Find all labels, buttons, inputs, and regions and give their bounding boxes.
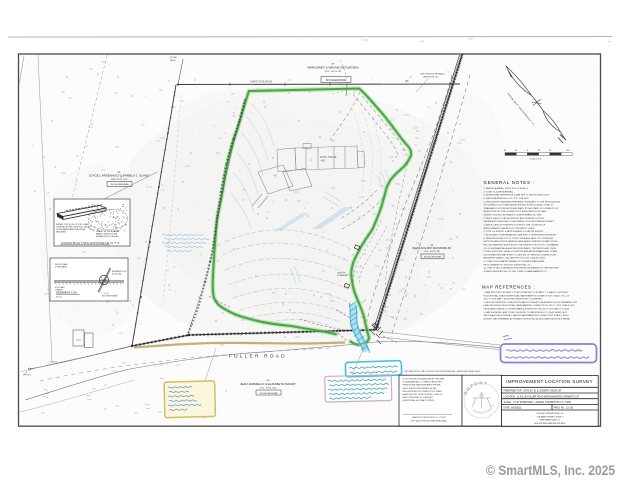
svg-text:SCALE : 1″=40′ APPROVED: SCALE : 1″=40′ APPROVED : LANDON J PETRO… [504,401,573,404]
svg-text:3. MAP SHOWING LAND TO BE CON: 3. MAP SHOWING LAND TO BE CONVEYED TO RA… [484,311,568,314]
svg-text:DATE : 8/18/2021: DATE : 8/18/2021 [504,407,523,410]
svg-text:2. RECORD RESURVEY SUBDIVISIO: 2. RECORD RESURVEY SUBDIVISION MAP FOR H… [484,301,578,304]
svg-text:178 MAIN STREET, SUITE 2: 178 MAIN STREET, SUITE 2 [537,415,565,418]
svg-text:Scale in feet: Scale in feet [530,158,541,161]
svg-text:(VOL. 142 PG. 88): (VOL. 142 PG. 88) [325,71,342,73]
svg-text:AND CONFORMS TO CLASS A-2: AND CONFORMS TO CLASS A-2 [403,396,434,399]
svg-text:IS SUBSTANTIALLY CORRECT AS NO: IS SUBSTANTIALLY CORRECT AS NOTED [403,381,443,384]
svg-text:LAND RECORDS FULLER ROAD, BARK: LAND RECORDS FULLER ROAD, BARKHAMSTED CO… [484,304,576,307]
svg-text:1. MAP ENTITLED PROPERTY TO B: 1. MAP ENTITLED PROPERTY TO BE CONVEYED … [484,291,570,294]
svg-text:REQUIRED: REQUIRED [56,232,67,234]
svg-text:9. TOTAL TOPOGRAPHIC AREAS OF: 9. TOTAL TOPOGRAPHIC AREAS OF COVERED WA… [484,260,545,263]
svg-text:(MIRAFI 600X OR EQUAL): (MIRAFI 600X OR EQUAL) [96,235,119,238]
svg-text:32 FULLER ROAD: 32 FULLER ROAD [424,256,442,259]
svg-text:MAP REFERENCES :: MAP REFERENCES : [482,285,535,290]
svg-text:29 FULLER ROAD: 29 FULLER ROAD [259,392,278,395]
svg-text:(VOL. 76 PG. 310): (VOL. 76 PG. 310) [260,388,277,390]
svg-text:RECORD MAPPING SUPPLIED BY THE: RECORD MAPPING SUPPLIED BY THE RESPECTIV… [484,243,560,246]
svg-text:LOCATION : 31 E/L 30 FULLER: LOCATION : 31 E/L 30 FULLER ROAD BARKHAM… [504,395,580,398]
svg-text:THIS MAP IS NOT VALID WITHOUT: THIS MAP IS NOT VALID WITHOUT A LIVE SIG… [404,370,481,373]
svg-text:DEPENDENT RESURVEY CONFORMING: DEPENDENT RESURVEY CONFORMING TO HORIZON… [484,220,556,223]
svg-text:AS ADOPTED BY THE CONNECTICUT: AS ADOPTED BY THE CONNECTICUT ASSOCIATIO… [484,210,547,213]
svg-text:3. HORIZONTAL REFERENCE = MAP: 3. HORIZONTAL REFERENCE = MAP REF. #1 BE… [484,194,549,197]
svg-text:DUPONT SURVEYING LLC: DUPONT SURVEYING LLC [536,413,564,415]
svg-text:30 FULLER ROAD: 30 FULLER ROAD [326,79,346,82]
svg-text:CLASS A-2 AND IS INTENDED TO D: CLASS A-2 AND IS INTENDED TO DEPICT THE … [484,224,546,227]
svg-text:JULY 8, 1964. MAP # 64-119 WES: JULY 8, 1964. MAP # 64-119 WESTINGHOUSE … [484,298,544,301]
svg-text:PREPARED FOR : STACEY B. & JO: PREPARED FOR : STACEY B. & JOSEPH ONON J… [504,390,563,393]
svg-text:GENERAL NOTES :: GENERAL NOTES : [484,180,535,185]
svg-text:JEAN JARMELLO & ELIZABETH MAND: JEAN JARMELLO & ELIZABETH MANDY [240,382,296,386]
svg-text:NOT VALID WITHOUT EMBOSSED SEA: NOT VALID WITHOUT EMBOSSED SEAL [411,419,447,422]
svg-text:IMPROVEMENT LOCATION SURVEY: IMPROVEMENT LOCATION SURVEY [506,379,593,384]
svg-text:P#1714: P#1714 [23,375,31,377]
svg-text:LINE OF BLDG SETBACK: LINE OF BLDG SETBACK [420,73,445,76]
svg-text:DEPICTED AND NOTED HEREON HAVE: DEPICTED AND NOTED HEREON HAVE BEEN COMP… [484,240,558,243]
svg-text:TO MY KNOWLEDGE AND BELIEF THI: TO MY KNOWLEDGE AND BELIEF THIS MAP [403,378,446,381]
svg-text:40: 40 [538,150,540,152]
svg-text:4. FIELD REFERENCE = LOC. CTL: 4. FIELD REFERENCE = LOC. CTL. STA. MLS [484,197,530,200]
svg-text:80: 80 [549,150,551,152]
svg-text:REGULATIONS OF CONNECTICUT STA: REGULATIONS OF CONNECTICUT STATE [403,390,443,393]
svg-text:SEDIMENT LOG: SEDIMENT LOG [56,291,77,295]
svg-text:N/F: N/F [405,81,409,83]
svg-text:5. THIS SURVEY HAS BEEN PREPA: 5. THIS SURVEY HAS BEEN PREPARED PURSUAN… [484,200,561,203]
svg-text:PECKS ASSOCIATES LLC (FORESMAN: PECKS ASSOCIATES LLC (FORESMAN) & SURVEY… [484,308,570,311]
svg-text:1. PARCEL A AREA = 78,675 S.F: 1. PARCEL A AREA = 78,675 S.F.± (1.81 AC… [484,187,529,190]
svg-text:OTHER SOURCES. THESE LOCATIONS: OTHER SOURCES. THESE LOCATIONS ARE APPRO… [484,250,558,253]
svg-text:10. LINE OF BLDG SETBACKS SHOW: 10. LINE OF BLDG SETBACKS SHOWN AS DELIN… [484,267,560,270]
svg-text:LANDON J PETROVITS L.S. # 70: LANDON J PETROVITS L.S. # 70297 [412,416,447,419]
svg-text:860-352-8960 FAX 860-352-89: 860-352-8960 FAX 860-352-8961 [535,422,567,425]
svg-text:MARGARET & WAYNE DETLEFSEN: MARGARET & WAYNE DETLEFSEN [307,66,358,70]
svg-text:SUCH FEATURES MAY EXIST. LOCAT: SUCH FEATURES MAY EXIST. LOCATIONS OF SE… [484,253,557,256]
svg-text:AGENCIES SECTIONS 20-300B-1 TH: AGENCIES SECTIONS 20-300B-1 THRU 20 [403,393,444,396]
svg-text:12 IN. DIA.: 12 IN. DIA. [112,272,122,275]
svg-text:SKETCHABLY AS FOUND ALL PARCEL: SKETCHABLY AS FOUND ALL PARCEL BARKHAMST… [484,314,570,317]
svg-text:HORIZONTAL ACCURACY SPECS.: HORIZONTAL ACCURACY SPECS. [403,399,436,402]
svg-text:(VOL. 101 PG. 17): (VOL. 101 PG. 17) [424,251,440,253]
svg-text:STANDARDS FOR SURVEYS AND MAPS: STANDARDS FOR SURVEYS AND MAPS IN THE ST… [484,207,560,210]
svg-text:40: 40 [504,150,506,152]
svg-text:JOYCE L ARSENAULT & PAMELA J.: JOYCE L ARSENAULT & PAMELA J. OLANO [89,174,150,178]
svg-text:CLEARING: CLEARING [337,274,348,277]
svg-text:FULLER ROAD & EAST RIVER ROAD,: FULLER ROAD & EAST RIVER ROAD, BARKHAMST… [484,294,570,297]
svg-text:OF CONNECTICUT STATE AGENCIES: OF CONNECTICUT STATE AGENCIES SECTIONS 2… [484,204,554,207]
svg-text:(SEE NOTE #2): (SEE NOTE #2) [423,77,438,79]
svg-text:OR GOVERNMENTAL AGENCIES FROM: OR GOVERNMENTAL AGENCIES FROM PAROL TEST… [484,247,557,250]
svg-text:NEW HARTFORD, CT: NEW HARTFORD, CT [540,419,562,422]
svg-text:AUGUST 1985 PREPARED BY HOWARD: AUGUST 1985 PREPARED BY HOWARD SURVEYING… [484,317,571,320]
svg-text:HELD: HELD [170,60,176,62]
svg-text:ZONING REGULATIONS OF THE TOWN: ZONING REGULATIONS OF THE TOWN OF BARKHA… [484,270,548,273]
svg-text:PROJ NO : 21-151: PROJ NO : 21-151 [554,408,574,410]
svg-text:N.T.S.: N.T.S. [56,296,62,298]
svg-text:7. BOUNDARY DETERMINATION CAT: 7. BOUNDARY DETERMINATION CATEGORY = DEP… [484,234,557,237]
svg-text:6. TYPE OF SURVEY = IMPROVEME: 6. TYPE OF SURVEY = IMPROVEMENT LOCATION… [484,230,544,233]
svg-text:HEREON AND WAS PREPARED FROM A: HEREON AND WAS PREPARED FROM A [403,384,442,387]
svg-text:ARE APPROXIMATE. CALL BEFORE Y: ARE APPROXIMATE. CALL BEFORE YOU DIG 1-8… [484,257,546,260]
svg-text:0: 0 [527,150,528,152]
svg-text:FIELD VERIFIED BY DUPONT SURVE: FIELD VERIFIED BY DUPONT SURVEYING LLC. [484,264,532,266]
svg-text:WOODEN STAKE: WOODEN STAKE [102,294,118,297]
svg-text:FIELD SURVEY AS DEFINED IN THE: FIELD SURVEY AS DEFINED IN THE [403,387,438,390]
svg-text:2. ZONE : R-2 (RESIDENTIAL): 2. ZONE : R-2 (RESIDENTIAL) [484,190,514,193]
svg-text:8. UNDERGROUND UTILITY STRUCT: 8. UNDERGROUND UTILITY STRUCTURE AND FAC… [484,237,554,240]
svg-text:35 FULLER ROAD: 35 FULLER ROAD [110,183,129,186]
svg-text:#31: #31 [321,159,326,162]
svg-text:IMPROVEMENTS RELATIVE TO PROPE: IMPROVEMENTS RELATIVE TO PROPERTY LINES. [484,227,536,230]
svg-text:IT IS A ZONING LOCATION SURVEY: IT IS A ZONING LOCATION SURVEY AND IS BA… [484,217,545,220]
svg-text:CONSTRUCTION ENTRANCE N.T.S: CONSTRUCTION ENTRANCE N.T.S. [61,241,121,245]
svg-text:S 88°07'10" E 344.25': S 88°07'10" E 344.25' [250,82,273,84]
svg-text:FULLER ROAD: FULLER ROAD [229,354,287,360]
svg-text:(2 PER BALE): (2 PER BALE) [55,265,67,268]
svg-text:20: 20 [515,150,517,152]
svg-text:(VOL. 96 PG. 241): (VOL. 96 PG. 241) [111,179,128,181]
svg-text:IP FND: IP FND [170,57,178,59]
svg-text:SURVEYORS INCORPORATED ON SEPT: SURVEYORS INCORPORATED ON SEPTEMBER 26, … [484,214,543,217]
svg-text:120: 120 [566,150,569,152]
